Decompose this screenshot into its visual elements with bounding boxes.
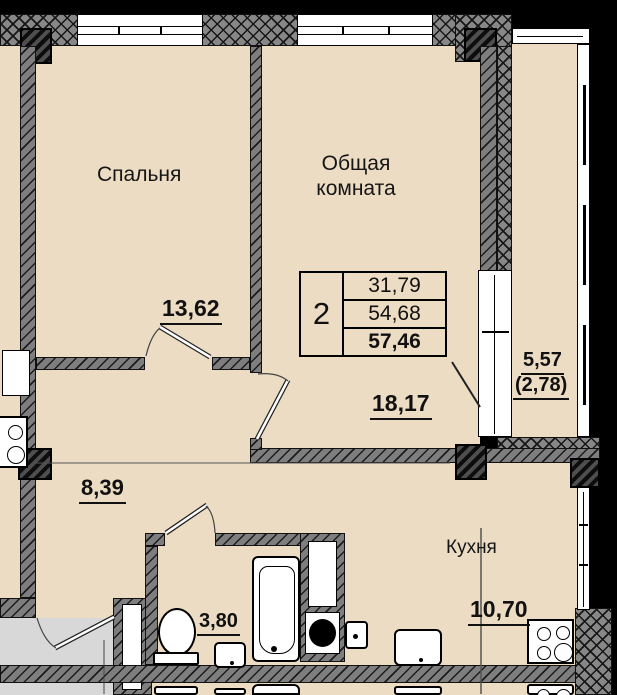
kitchen-sink-icon [394,629,442,666]
living-room-label-line2: комната [300,176,412,201]
living-room-label: Общая комната [300,151,412,201]
water-heater-icon [345,621,368,649]
lower-unit-fixture [252,684,300,695]
toilet-bowl-icon [158,608,196,656]
neighbor-apartment-floor [0,46,20,598]
living-door-gap [250,373,262,440]
left-wall-niche [2,350,30,396]
lower-unit-fixture [154,686,198,695]
info-row-2: 54,68 [344,299,445,329]
entrance-wall-stub [0,598,36,618]
living-bottom-wall [250,448,600,463]
balcony-side-glazing [577,44,590,437]
bottom-exterior-wall [0,665,600,683]
living-wall-stub [250,438,262,450]
bedroom-living-wall [250,46,262,373]
living-window [297,14,433,46]
bathroom-area: 3,80 [197,610,240,636]
living-room-label-line1: Общая [300,151,412,176]
bathroom-top-wall-left [145,533,165,546]
junction-column [455,444,487,480]
balcony-door-window [478,270,512,437]
bedroom-label: Спальня [97,163,181,187]
stove-icon [527,619,574,664]
balcony-partition-wall-outer [497,46,512,272]
kitchen-area: 10,70 [468,596,530,626]
riser-pipe-icon [309,619,336,647]
living-room-floor [262,46,480,448]
bedroom-window [77,14,203,46]
info-row-3: 57,46 [344,329,445,355]
balcony-partition-wall [480,46,497,272]
apartment-info-box: 2 31,79 54,68 57,46 [299,271,447,357]
room-count: 2 [301,273,344,355]
kitchen-label: Кухня [446,537,497,559]
lower-unit-fixture [214,688,246,695]
floor-plan: Спальня Общая комната Кухня 13,62 18,17 … [0,0,617,695]
balcony-area-reduced: (2,78) [513,374,569,400]
balcony-top-glazing [512,28,590,44]
hallway-area: 8,39 [79,475,126,504]
bedroom-area: 13,62 [160,295,222,325]
bathtub-icon [252,556,300,662]
bedroom-bottom-wall-right [212,357,250,370]
stairwell-floor [0,618,115,695]
living-area: 18,17 [370,390,432,420]
bottom-right-corner-wall [575,608,612,695]
bathroom-sink-icon [214,642,246,668]
toilet-tank-icon [153,652,199,665]
info-row-1: 31,79 [344,273,445,299]
duct-shaft-opening [308,541,337,607]
lower-unit-fixture [394,686,442,695]
kitchen-column [570,458,600,488]
left-party-wall [20,46,36,598]
bedroom-bottom-wall-left [36,357,145,370]
riser-box [305,612,340,654]
balcony-area: 5,57 [521,349,564,375]
kitchen-window [577,487,590,610]
neighbor-stove-icon [0,416,28,468]
lower-unit-fixture [527,684,574,695]
bathroom-left-wall [145,546,158,665]
